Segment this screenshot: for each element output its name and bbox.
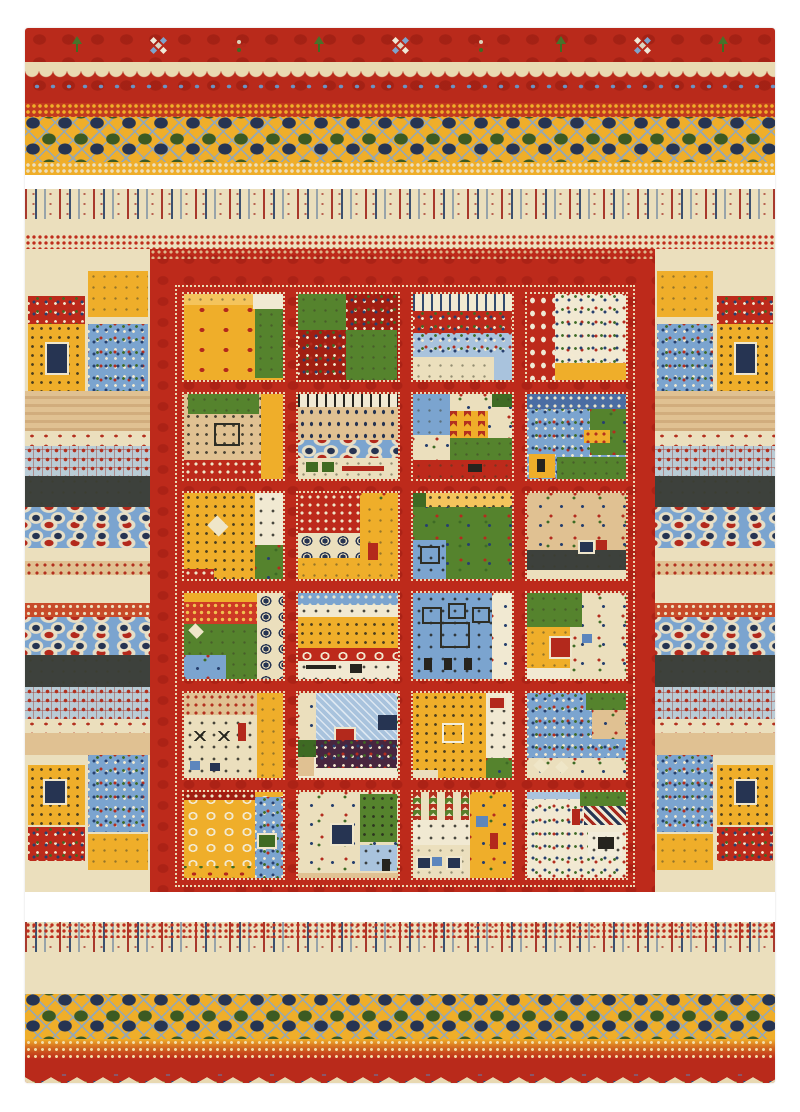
grid-cell-r2c3 <box>411 392 514 482</box>
cell-block <box>413 820 471 846</box>
side-patch <box>88 271 148 317</box>
side-band-left <box>25 249 150 892</box>
cell-block <box>468 464 482 473</box>
fade-gold-to-cream <box>25 162 775 175</box>
side-band-right <box>655 249 775 892</box>
cell-block <box>298 593 397 605</box>
border-cream-bottom <box>25 922 775 994</box>
border-scallop-bottom <box>25 1059 775 1083</box>
side-stripe <box>25 507 150 548</box>
border-gold-lattice-top <box>25 117 775 162</box>
cell-block <box>210 763 220 772</box>
cell-block <box>492 394 512 407</box>
cell-block <box>450 438 512 460</box>
grid-cell-r4c2 <box>296 591 399 681</box>
side-stripe <box>25 548 150 561</box>
side-patch <box>28 296 86 324</box>
cell-block <box>298 394 397 408</box>
center-red-panel <box>150 249 655 892</box>
tree-motif <box>715 36 731 54</box>
cell-block <box>527 792 581 799</box>
cell-block <box>368 543 378 560</box>
cell-block <box>446 856 462 870</box>
cell-block <box>527 294 555 380</box>
cell-block <box>257 693 283 779</box>
cell-block <box>537 459 545 473</box>
cell-block <box>298 440 397 458</box>
cell-block <box>257 833 277 849</box>
side-stripe <box>25 617 150 655</box>
cell-block <box>184 460 261 479</box>
cell-block <box>598 837 614 849</box>
cell-block <box>527 394 626 409</box>
side-patch <box>43 779 67 805</box>
side-stripe <box>25 575 150 603</box>
side-stripe <box>655 655 775 687</box>
rug-photo <box>0 0 800 1112</box>
side-patch <box>734 342 757 374</box>
flower-motif <box>473 36 489 54</box>
cell-block <box>578 540 595 554</box>
cell-block <box>420 546 440 564</box>
cell-block <box>298 740 316 757</box>
cell-block <box>444 658 452 670</box>
cell-block <box>360 493 398 503</box>
cell-block <box>298 873 397 878</box>
side-stripe <box>25 655 150 687</box>
cell-block <box>188 394 259 415</box>
side-stripe <box>25 719 150 733</box>
cell-block <box>413 792 471 819</box>
cell-block <box>342 466 384 471</box>
grid-cell-r2c4 <box>525 392 628 482</box>
grid-cell-r4c4 <box>525 591 628 681</box>
cell-block <box>527 570 626 579</box>
cell-block <box>306 665 336 669</box>
cell-block <box>298 648 397 661</box>
cell-block <box>464 658 472 670</box>
cell-block <box>253 294 283 309</box>
cell-block <box>360 794 398 842</box>
cell-block <box>596 540 607 549</box>
side-stripe <box>655 687 775 719</box>
cell-block <box>378 715 398 730</box>
top-motif-row <box>37 33 763 57</box>
cell-block <box>306 462 318 472</box>
side-stripe <box>25 561 150 575</box>
cell-block <box>184 602 257 624</box>
cell-block <box>592 710 626 739</box>
cell-block <box>298 661 397 679</box>
cell-block <box>298 605 397 617</box>
flower-motif <box>231 36 247 54</box>
cell-block <box>413 394 451 435</box>
grid-cell-r1c1 <box>182 292 285 382</box>
side-stripe <box>655 617 775 655</box>
grid-cell-r6c3 <box>411 790 514 880</box>
grid-cell-r5c3 <box>411 691 514 781</box>
side-patch <box>657 324 712 391</box>
cell-block <box>448 603 466 619</box>
border-cream-top <box>25 189 775 249</box>
cell-block <box>492 593 512 679</box>
cell-block <box>486 758 512 779</box>
grid-cell-r6c1 <box>182 790 285 880</box>
cell-block <box>255 545 283 579</box>
patchwork-grid <box>177 287 633 885</box>
cell-block <box>350 664 362 673</box>
cell-block <box>298 294 346 330</box>
tree-motif <box>553 36 569 54</box>
side-stripe <box>25 733 150 755</box>
pole-motif-row-top <box>25 189 775 219</box>
cell-block <box>527 668 571 678</box>
grid-cell-r3c4 <box>525 491 628 581</box>
grid-cell-r5c1 <box>182 691 285 781</box>
cell-block <box>346 330 398 380</box>
cell-block <box>360 845 398 871</box>
cell-block <box>298 330 346 380</box>
side-patch <box>717 827 772 861</box>
cell-block <box>346 294 398 330</box>
cell-block <box>413 460 512 479</box>
tree-motif <box>311 36 327 54</box>
cell-block <box>184 593 257 602</box>
side-stripe <box>655 719 775 733</box>
side-stripe <box>25 687 150 719</box>
cell-block <box>416 856 432 870</box>
cell-block <box>316 768 397 778</box>
fade-red-to-gold <box>25 103 775 117</box>
grid-cell-r1c2 <box>296 292 399 382</box>
cell-block <box>298 493 360 532</box>
grid-cell-r6c2 <box>296 790 399 880</box>
cell-block <box>238 723 246 740</box>
diamond4-motif <box>392 36 408 54</box>
cell-block <box>184 792 255 800</box>
cell-block <box>413 770 439 779</box>
side-patch <box>717 296 772 324</box>
grid-cell-r2c1 <box>182 392 285 482</box>
cell-block <box>184 866 255 878</box>
side-patch <box>734 779 757 805</box>
cell-block <box>584 806 626 825</box>
cell-block <box>298 757 314 776</box>
cell-block <box>527 593 583 627</box>
side-stripe <box>25 875 150 892</box>
grid-cell-r3c3 <box>411 491 514 581</box>
cell-block <box>190 761 200 770</box>
cell-block <box>257 593 283 679</box>
side-stripe <box>655 755 775 875</box>
cell-block <box>476 816 488 826</box>
cell-block <box>413 493 427 507</box>
side-stripe <box>25 603 150 617</box>
side-stripe <box>25 446 150 476</box>
side-patch <box>657 271 712 317</box>
scallop-triangle-row <box>25 1077 775 1083</box>
cell-block <box>218 731 230 741</box>
side-stripe <box>25 431 150 446</box>
grid-cell-r1c3 <box>411 292 514 382</box>
side-stripe <box>25 391 150 431</box>
side-patch <box>657 834 712 870</box>
cell-block <box>194 731 206 741</box>
grid-cell-r3c1 <box>182 491 285 581</box>
side-stripe <box>655 733 775 755</box>
cell-block <box>426 493 511 507</box>
stipple-transition <box>25 922 775 938</box>
cell-block <box>413 333 512 357</box>
grid-cell-r5c4 <box>525 691 628 781</box>
diamond4-motif <box>634 36 650 54</box>
side-stripe <box>655 431 775 446</box>
side-patch <box>88 755 148 832</box>
side-stripe <box>655 263 775 391</box>
cell-block <box>316 740 397 768</box>
cell-block <box>255 309 283 378</box>
cell-block <box>580 792 626 806</box>
cell-block <box>255 493 283 544</box>
cell-block <box>572 809 580 824</box>
side-patch <box>45 342 69 374</box>
border-gold-lattice-bottom <box>25 994 775 1039</box>
cell-block <box>214 423 240 446</box>
side-patch <box>88 834 148 870</box>
border-top-red <box>25 28 775 103</box>
cell-block <box>494 357 512 379</box>
cell-block <box>298 533 360 559</box>
side-stripe <box>655 507 775 548</box>
top-pendant-row <box>25 78 775 91</box>
grid-cell-r6c4 <box>525 790 628 880</box>
side-patch <box>657 755 712 832</box>
cell-block <box>557 457 626 479</box>
rug-midfield <box>25 249 775 892</box>
grid-cell-r4c1 <box>182 591 285 681</box>
cell-block <box>184 693 257 715</box>
stipple-transition <box>25 234 775 249</box>
side-stripe <box>25 249 150 263</box>
side-stripe <box>655 548 775 561</box>
grid-cell-r1c4 <box>525 292 628 382</box>
cell-block <box>261 394 283 480</box>
cell-block <box>322 462 334 472</box>
side-stripe <box>655 476 775 507</box>
cell-block <box>184 569 214 579</box>
cell-block <box>382 859 390 871</box>
side-stripe <box>655 391 775 431</box>
gabbeh-patchwork-rug <box>25 28 775 1083</box>
side-stripe <box>655 561 775 575</box>
side-patch <box>88 324 148 391</box>
top-scallop-edge <box>25 71 775 78</box>
side-stripe <box>25 476 150 507</box>
side-patch <box>28 827 86 861</box>
fade-gold-to-red <box>25 1039 775 1059</box>
side-stripe <box>655 603 775 617</box>
side-stripe <box>25 755 150 875</box>
cell-block <box>586 693 626 710</box>
cell-block <box>555 363 626 380</box>
cell-block <box>490 833 498 848</box>
grid-cell-r4c3 <box>411 591 514 681</box>
cell-block <box>584 430 610 444</box>
side-stripe <box>655 249 775 263</box>
side-stripe <box>655 875 775 892</box>
grid-cell-r5c2 <box>296 691 399 781</box>
grid-cell-r2c2 <box>296 392 399 482</box>
cell-block <box>413 311 512 333</box>
side-stripe <box>655 446 775 476</box>
top-scallop-stripe <box>25 62 775 71</box>
side-stripe <box>655 575 775 603</box>
cell-block <box>413 294 512 311</box>
cell-block <box>488 696 506 710</box>
cell-block <box>440 622 470 648</box>
cell-block <box>330 823 354 846</box>
cell-block <box>432 857 442 866</box>
tree-motif <box>69 36 85 54</box>
cell-block <box>582 634 592 643</box>
cell-block <box>472 607 490 623</box>
cell-block <box>442 723 464 742</box>
cell-block <box>184 655 226 679</box>
cell-block <box>450 411 488 438</box>
cell-block <box>424 658 432 670</box>
grid-cell-r3c2 <box>296 491 399 581</box>
side-stripe <box>25 263 150 391</box>
cell-block <box>527 550 626 571</box>
diamond4-motif <box>150 36 166 54</box>
cell-block <box>549 636 573 659</box>
